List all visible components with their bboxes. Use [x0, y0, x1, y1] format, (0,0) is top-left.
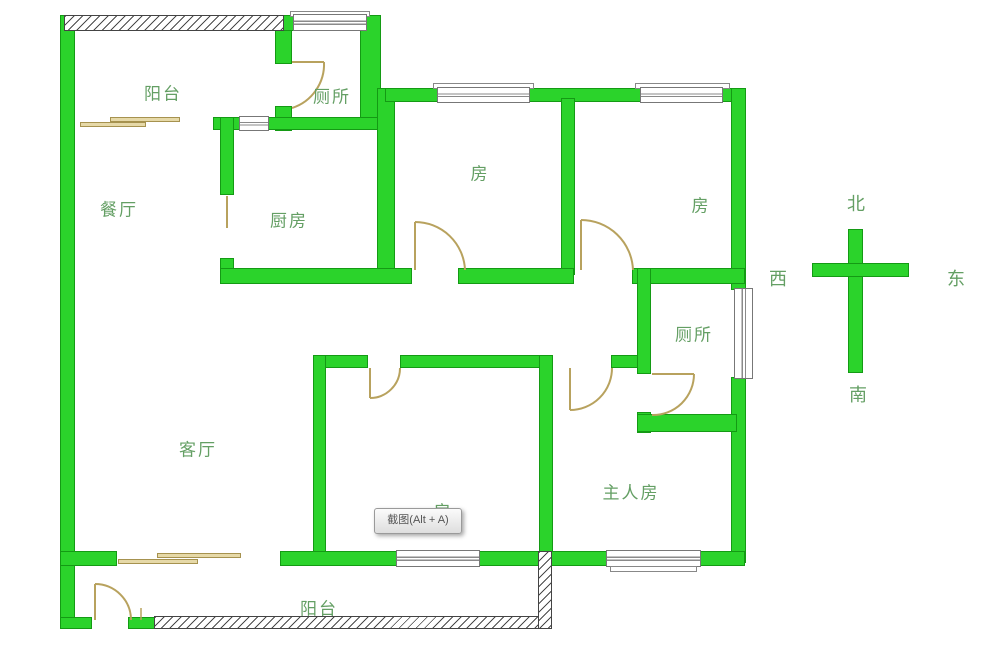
label-toilet-right: 厕所 — [675, 321, 713, 346]
wall-kitchen-top — [213, 117, 378, 130]
door-balcony-arc — [95, 584, 131, 620]
wall-room-left-west — [377, 88, 395, 284]
hatched-wall-top-left — [64, 15, 284, 31]
label-balcony-bottom: 阳台 — [300, 595, 338, 620]
compass-label-west: 西 — [769, 265, 787, 291]
door-room-left-arc — [415, 222, 465, 270]
label-room-left: 房 — [471, 160, 490, 185]
wall-hall-south-b — [400, 355, 552, 368]
window-sill-master-bottom — [610, 566, 697, 572]
sliding-door-balcony-top-leaf-2 — [80, 122, 146, 127]
window-right-wall — [734, 288, 753, 379]
hatched-wall-balcony-bottom — [154, 616, 540, 629]
sliding-door-living-leaf-1 — [157, 553, 241, 558]
compass-bar-vertical — [848, 229, 863, 373]
door-master-arc — [570, 368, 612, 410]
window-toilet-top — [293, 14, 367, 31]
wall-hall-north-c — [458, 268, 574, 284]
wall-living-bottom-left — [60, 551, 117, 566]
floor-plan: 阳台 厕所 餐厅 厨房 房 房 厕所 客厅 房 主人房 阳台 北 南 西 东 截… — [0, 0, 1000, 660]
label-kitchen: 厨房 — [270, 207, 308, 232]
label-toilet-top: 厕所 — [313, 83, 351, 108]
window-kitchen — [239, 116, 269, 131]
wall-toilet-top-left-a — [275, 30, 292, 64]
window-room-left — [437, 87, 530, 103]
compass-bar-horizontal — [812, 263, 909, 277]
window-room-right — [640, 87, 723, 103]
wall-toilet-right-bottom — [637, 414, 737, 432]
label-master: 主人房 — [603, 479, 660, 504]
door-room-bottom-arc — [370, 368, 400, 398]
wall-rooms-divider — [561, 98, 575, 275]
wall-outer-right-lower — [731, 377, 746, 563]
window-master-bottom — [606, 550, 701, 567]
wall-outer-left — [60, 15, 75, 629]
wall-balcony-door-stub — [128, 617, 156, 629]
wall-hall-north-b — [220, 268, 412, 284]
door-room-right-arc — [581, 220, 633, 270]
wall-toilet-right-left-a — [637, 268, 651, 374]
label-dining: 餐厅 — [100, 196, 138, 221]
compass-label-south: 南 — [849, 381, 867, 407]
hatched-wall-balcony-right — [538, 551, 552, 629]
label-living: 客厅 — [179, 436, 217, 461]
wall-outer-right-upper — [731, 88, 746, 290]
window-midroom-bottom — [396, 550, 480, 567]
wall-midroom-left — [313, 355, 326, 566]
door-toilet-right-arc — [652, 374, 694, 415]
sliding-door-living-leaf-2 — [118, 559, 198, 564]
label-balcony-top: 阳台 — [144, 80, 182, 105]
screenshot-tooltip: 截图(Alt + A) — [374, 508, 462, 534]
wall-midroom-right — [539, 355, 553, 566]
compass-label-north: 北 — [847, 190, 865, 216]
wall-balcony-bottom-left — [60, 617, 92, 629]
compass-label-east: 东 — [947, 265, 965, 291]
label-room-right: 房 — [692, 192, 711, 217]
wall-kitchen-left — [220, 117, 234, 195]
